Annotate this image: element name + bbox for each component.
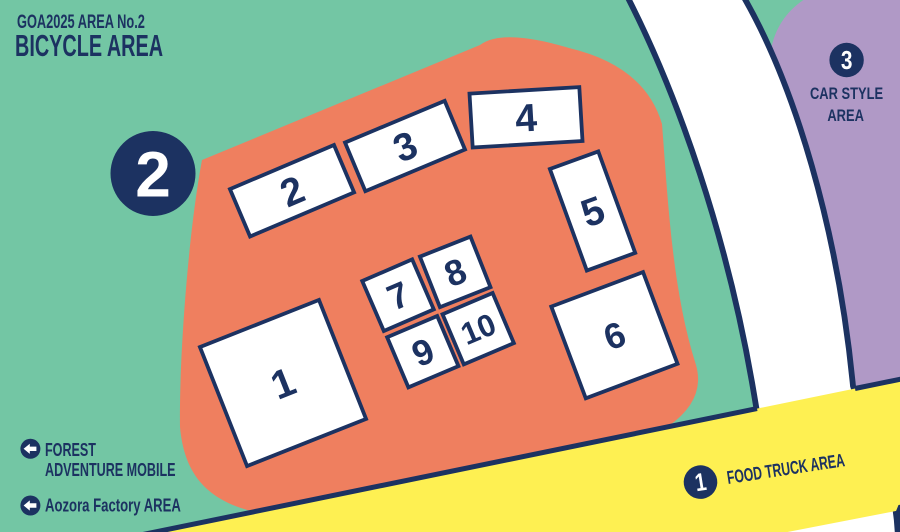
svg-text:3: 3: [841, 46, 853, 75]
svg-text:Aozora Factory AREA: Aozora Factory AREA: [45, 495, 181, 516]
svg-text:2: 2: [135, 139, 171, 211]
svg-text:ADVENTURE MOBILE: ADVENTURE MOBILE: [45, 461, 176, 481]
svg-text:BICYCLE AREA: BICYCLE AREA: [15, 27, 163, 63]
svg-text:AREA: AREA: [827, 106, 864, 125]
svg-text:FOREST: FOREST: [45, 441, 96, 461]
svg-text:CAR STYLE: CAR STYLE: [810, 84, 883, 103]
svg-text:4: 4: [514, 97, 539, 141]
